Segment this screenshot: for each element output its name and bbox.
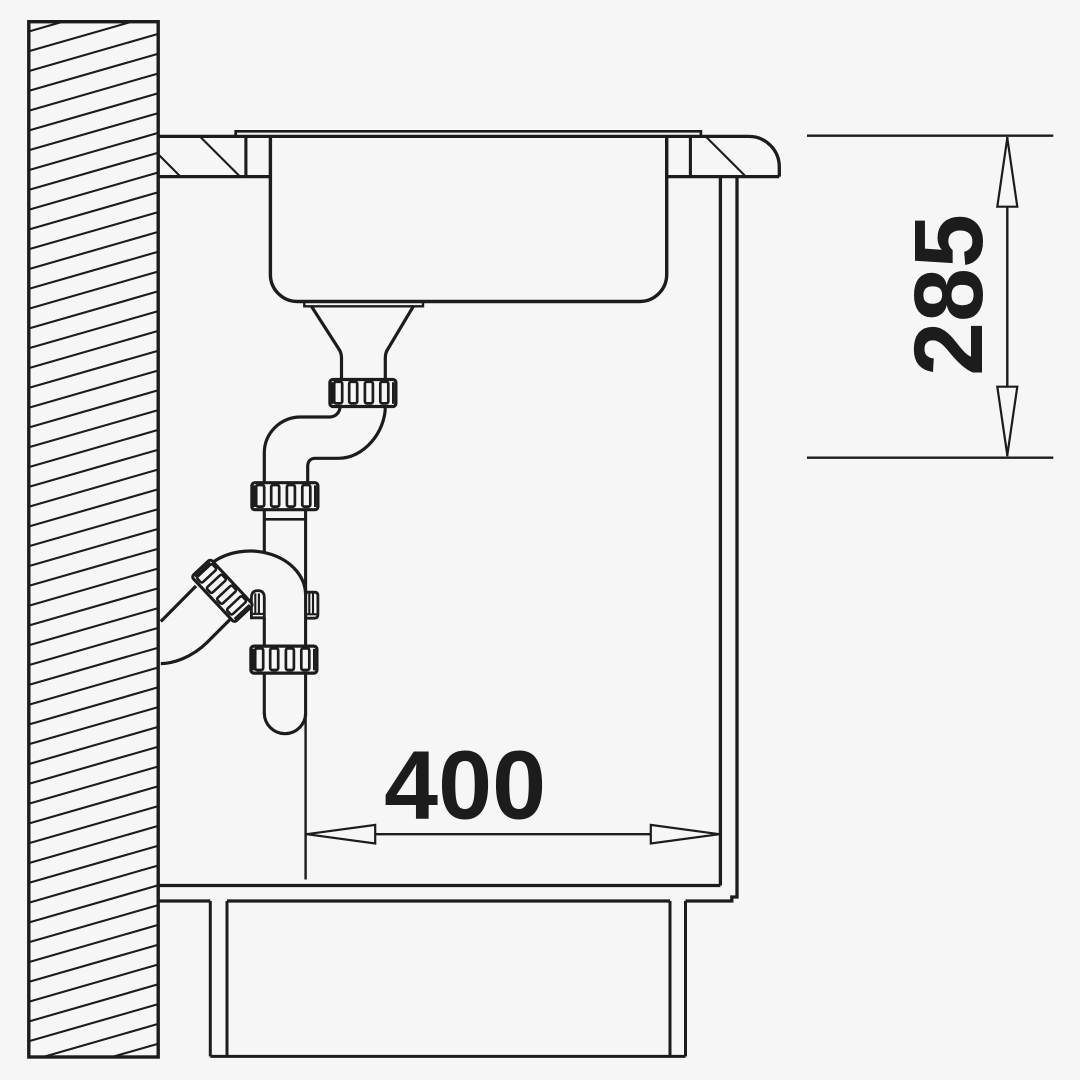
svg-text:285: 285	[894, 214, 1003, 376]
svg-text:400: 400	[384, 731, 546, 840]
